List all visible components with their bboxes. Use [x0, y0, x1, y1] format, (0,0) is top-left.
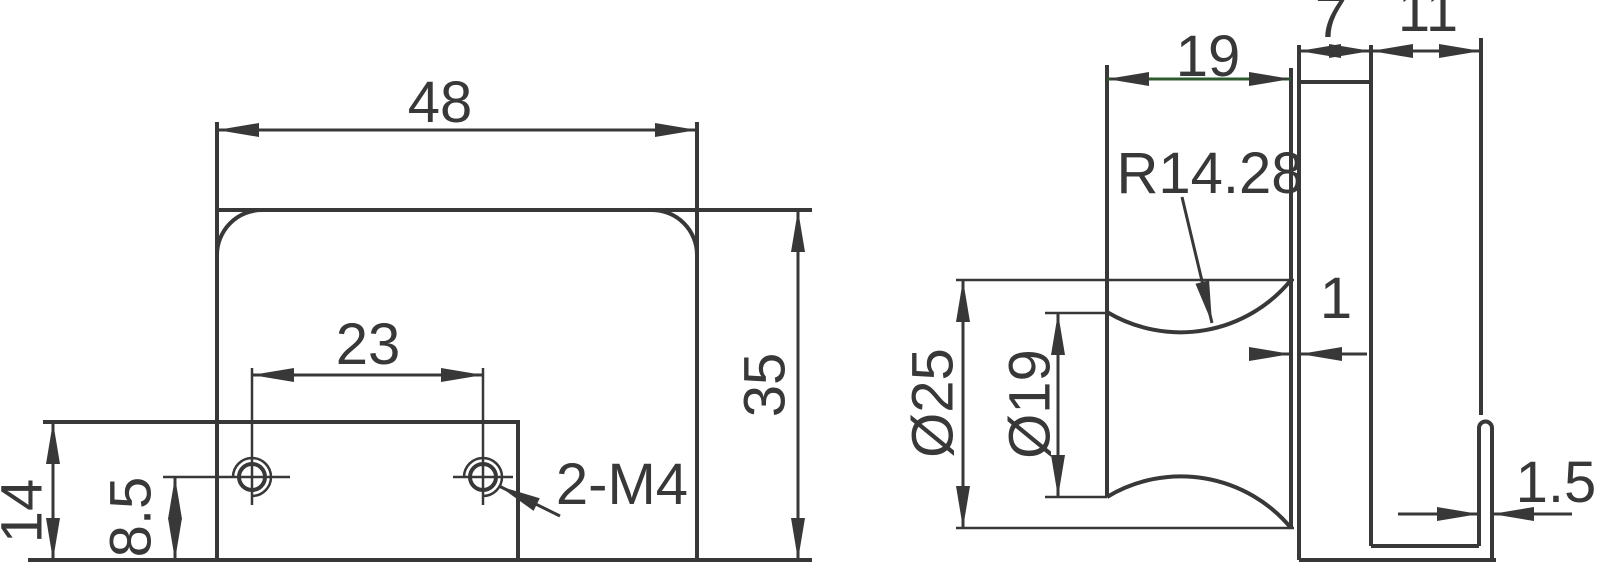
drawing-page: 48 23 35 14 8.5 2-M4 19: [0, 0, 1600, 565]
dim-depth-label: 11: [1398, 0, 1458, 44]
dim-knob-length-label: 19: [1176, 24, 1241, 89]
thread-leader-line: [499, 486, 560, 516]
dim-width-label: 48: [408, 70, 473, 135]
dim-clearance-label: 1: [1320, 266, 1352, 331]
mounting-slot-channel: [1479, 422, 1492, 561]
knob-concave-top-arc: [1107, 280, 1291, 332]
screw-hole-right: [453, 368, 513, 505]
plate-corner-arc-right: [652, 210, 697, 255]
dim-hole-spacing-label: 23: [336, 312, 401, 377]
side-view: 19 7 11 Ø25 Ø19 R14.28 1 1.5: [901, 0, 1597, 560]
thread-callout-label: 2-M4: [556, 452, 688, 517]
radius-leader-line: [1182, 197, 1212, 323]
front-view: 48 23 35 14 8.5 2-M4: [0, 70, 812, 560]
knob-concave-bottom-arc: [1107, 476, 1291, 528]
plate-corner-arc-left: [217, 210, 262, 255]
screw-hole-left: [163, 368, 290, 505]
dim-step-height-label: 14: [0, 479, 55, 544]
dim-hole-offset-label: 8.5: [99, 477, 164, 558]
dim-height-label: 35: [733, 353, 798, 418]
dim-slot-label: 1.5: [1516, 450, 1597, 515]
dim-plate-thickness-label: 7: [1315, 0, 1347, 50]
dim-waist-diameter-label: Ø19: [998, 349, 1063, 459]
drawing-canvas: 48 23 35 14 8.5 2-M4 19: [0, 0, 1600, 565]
dim-outer-diameter-label: Ø25: [901, 348, 966, 458]
radius-callout-label: R14.28: [1116, 141, 1303, 206]
